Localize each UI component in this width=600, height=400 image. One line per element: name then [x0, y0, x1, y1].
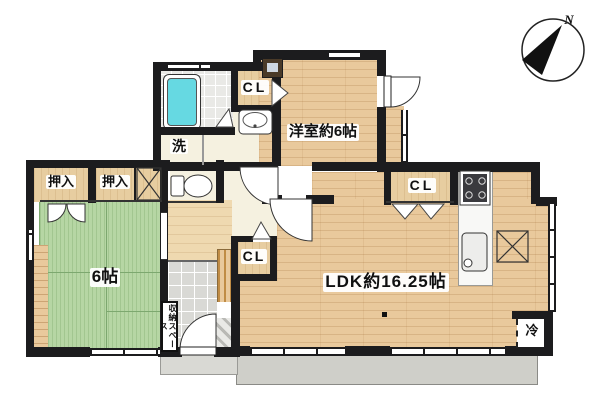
storage-box-floor	[136, 167, 162, 202]
wall	[231, 105, 273, 112]
oshiire-left-label: 押入	[38, 175, 84, 189]
wall	[262, 195, 282, 204]
wall	[345, 346, 390, 356]
window	[548, 204, 556, 312]
wall	[153, 127, 235, 135]
ldk-floor-southwest	[238, 281, 278, 351]
compass	[522, 19, 584, 81]
balcony	[236, 353, 538, 385]
wall	[377, 162, 540, 172]
closet-upper-label: CL	[238, 80, 272, 95]
wall	[377, 50, 386, 166]
water-heater-icon	[262, 58, 283, 78]
ldk-label: LDK約16.25帖	[308, 273, 464, 292]
closet-hall-label: CL	[238, 249, 270, 264]
window	[27, 230, 34, 262]
wall	[306, 195, 334, 204]
closet-kitchen-front-line	[386, 201, 454, 203]
wall	[512, 347, 553, 356]
sliding-door-gap	[161, 212, 167, 260]
window	[401, 110, 408, 163]
window	[250, 347, 345, 356]
door-swing	[390, 77, 420, 107]
laundry-divider	[202, 135, 204, 165]
wall	[26, 160, 170, 168]
pillar-dot	[382, 312, 387, 317]
oshiire-right-label: 押入	[95, 175, 135, 189]
refrigerator-label: 冷	[521, 324, 543, 338]
kitchen-counter	[458, 170, 493, 286]
tatami-mat-line	[106, 311, 162, 312]
wall	[216, 160, 224, 203]
tatami-room-label: 6帖	[83, 268, 127, 287]
tatami-board-strip	[34, 245, 48, 351]
toilet-room-floor	[170, 167, 216, 202]
window	[166, 63, 210, 70]
window	[90, 348, 160, 356]
storage-space-label: 収納スペース	[161, 301, 178, 352]
compass-north-label: N	[560, 13, 578, 27]
floor-plan-canvas: 洋室約6帖 LDK約16.25帖 6帖 洗 冷 CL CL CL 押入 押入 収…	[0, 0, 600, 400]
wall	[231, 236, 253, 242]
wall	[312, 162, 386, 171]
refrigerator-dashed-edge	[516, 319, 520, 348]
laundry-label: 洗	[168, 139, 190, 154]
wall	[153, 62, 161, 168]
window	[390, 347, 505, 356]
bathtub-water	[167, 78, 197, 126]
compass-needle	[522, 25, 562, 75]
wall	[26, 347, 90, 357]
wall	[231, 274, 277, 281]
window	[327, 51, 361, 59]
doorway-gap	[377, 76, 386, 107]
bathtub	[163, 74, 201, 130]
entrance-kamachi-line	[168, 260, 217, 262]
closet-kitchen-label: CL	[400, 178, 444, 193]
toilet-door-line	[168, 201, 216, 203]
wall	[231, 281, 240, 352]
oshiire-front-line	[40, 200, 162, 202]
western-room-label: 洋室約6帖	[268, 124, 378, 141]
